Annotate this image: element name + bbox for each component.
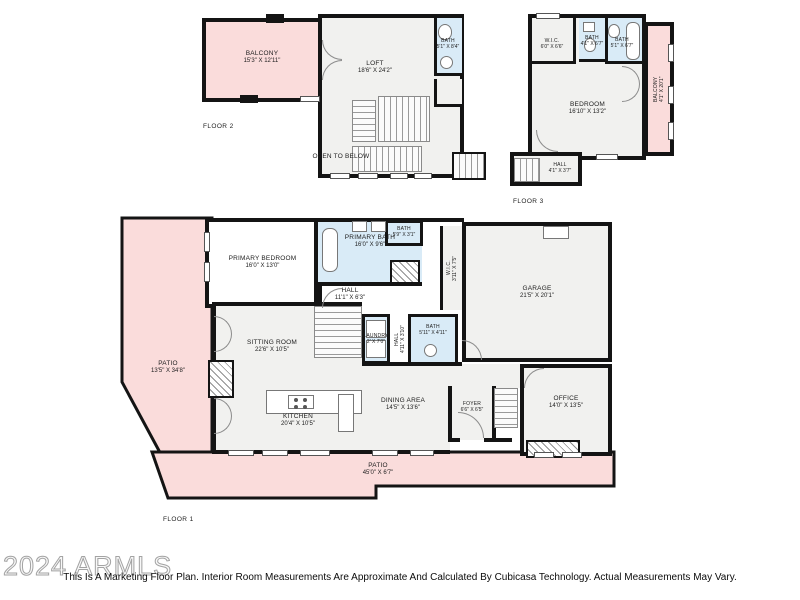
foyer-stairs [494, 388, 518, 428]
window [534, 452, 554, 458]
room-dims: 4'11" X 3'10" [400, 325, 406, 353]
room-dims: 6'0" X 6'6" [541, 44, 564, 50]
room-dims: 5'9" X 3'1" [393, 232, 416, 238]
window [204, 262, 210, 282]
fireplace [208, 360, 234, 398]
room-name: HALL [341, 287, 358, 295]
room-dims: 4'1" X 3'7" [549, 168, 572, 174]
window [300, 96, 320, 102]
balcony-post [240, 95, 258, 103]
room-dims: 13'5" X 34'8" [151, 368, 185, 376]
window [372, 450, 398, 456]
room-name: KITCHEN [283, 413, 313, 421]
room-label-hall-lower: HALL 4'11" X 3'10" [392, 316, 408, 362]
room-label-bath-mid: BATH 5'11" X 4'11" [410, 322, 456, 338]
toilet [424, 344, 437, 357]
floor3-tag: FLOOR 3 [513, 198, 544, 205]
window [668, 122, 674, 140]
room-label-patio-bottom: PATIO 45'0" X 6'7" [330, 460, 426, 480]
room-name: PATIO [368, 462, 388, 470]
room-name: OFFICE [553, 395, 578, 403]
room-label-floor2-bath: BATH 5'1" X 8'4" [427, 36, 469, 52]
room-label-hall-upper: HALL 11'1" X 6'3" [318, 286, 382, 304]
room-name: OPEN TO BELOW [313, 153, 370, 161]
disclaimer-text: This Is A Marketing Floor Plan. Interior… [0, 572, 800, 583]
room-label-bath-small: BATH 5'9" X 3'1" [386, 222, 422, 242]
room-label-floor3-bath-b: BATH 5'1" X 6'7" [596, 36, 648, 50]
room-name: BALCONY [246, 50, 278, 58]
wall [362, 362, 462, 366]
window [596, 154, 618, 160]
room-label-laundry: LAUNDRY 2' X 7'0" [360, 330, 392, 348]
room-dims: 14'5" X 13'6" [386, 405, 420, 413]
sink [440, 56, 453, 69]
room-dims: 15'3" X 12'11" [244, 58, 281, 66]
room-dims: 14'0" X 13'5" [549, 403, 583, 411]
room-dims: 20'4" X 10'5" [281, 421, 315, 429]
sink [352, 221, 367, 232]
room-label-floor3-bedroom: BEDROOM 16'10" X 13'2" [545, 98, 630, 120]
window [536, 13, 560, 19]
room-dims: 21'5" X 20'1" [520, 293, 554, 301]
room-label-dining: DINING AREA 14'5" X 13'6" [358, 394, 448, 416]
floor2-closet [434, 79, 462, 107]
room-dims: 5'1" X 6'7" [611, 43, 634, 49]
floor2-tag: FLOOR 2 [203, 123, 234, 130]
room-label-primary-bedroom: PRIMARY BEDROOM 16'0" X 13'0" [215, 252, 310, 274]
window [228, 450, 254, 456]
window [358, 173, 378, 179]
room-label-patio-left: PATIO 13'5" X 34'8" [128, 358, 208, 378]
room-label-floor3-hall: HALL 4'1" X 3'7" [540, 158, 580, 178]
cooktop-burners [294, 398, 298, 402]
room-dims: 45'0" X 6'7" [363, 470, 394, 478]
room-dims: 5'11" X 4'11" [419, 330, 447, 336]
room-dims: 5'1" X 8'4" [437, 44, 460, 50]
sink [583, 22, 595, 32]
room-dims: 6'6" X 6'5" [461, 407, 484, 413]
room-label-sitting-room: SITTING ROOM 22'6" X 10'5" [222, 336, 322, 358]
window [262, 450, 288, 456]
room-label-garage: GARAGE 21'5" X 20'1" [492, 282, 582, 304]
window [300, 450, 330, 456]
wall [484, 438, 512, 442]
floor-plan-canvas: BALCONY 15'3" X 12'11" LOFT 18'6" X 24'2… [0, 0, 800, 600]
room-dims: 11'1" X 6'3" [335, 295, 365, 303]
room-dims: 18'6" X 24'2" [358, 68, 392, 76]
sink [371, 221, 386, 232]
room-dims: 16'0" X 9'6" [355, 242, 386, 250]
room-label-office: OFFICE 14'0" X 13'5" [522, 392, 610, 414]
room-label-wic: W.I.C. 3'11" X 7'5" [444, 238, 460, 298]
window [390, 173, 408, 179]
window [330, 173, 350, 179]
room-label-floor3-balcony: BALCONY 4'1" X 20'1" [647, 56, 671, 122]
floor3-stairs [514, 158, 540, 182]
cooktop [288, 395, 314, 409]
room-name: BEDROOM [570, 101, 605, 109]
room-dims: 2' X 7'0" [367, 339, 385, 345]
room-dims: 3'11" X 7'5" [452, 255, 458, 280]
room-label-kitchen: KITCHEN 20'4" X 10'5" [252, 410, 344, 432]
room-dims: 16'0" X 13'0" [246, 263, 280, 271]
room-dims: 4'1" X 20'1" [659, 76, 665, 101]
room-label-foyer: FOYER 6'6" X 6'5" [450, 398, 494, 416]
loft-stairs [378, 96, 430, 142]
room-name: SITTING ROOM [247, 339, 297, 347]
floor1-tag: FLOOR 1 [163, 516, 194, 523]
balcony-post [266, 14, 284, 23]
room-name: DINING AREA [381, 397, 425, 405]
room-name: GARAGE [522, 285, 551, 293]
room-name: PRIMARY BEDROOM [229, 255, 297, 263]
loft-stairs [352, 100, 376, 142]
window [414, 173, 432, 179]
window [562, 452, 582, 458]
wall [448, 438, 460, 442]
patio-left-shape [122, 218, 212, 460]
water-heater [543, 226, 569, 239]
room-label-floor2-balcony: BALCONY 15'3" X 12'11" [212, 46, 312, 70]
shower [390, 260, 420, 284]
room-name: LOFT [366, 60, 383, 68]
window [204, 232, 210, 252]
wall [418, 218, 464, 222]
room-label-floor2-loft: LOFT 18'6" X 24'2" [330, 56, 420, 80]
room-dims: 22'6" X 10'5" [255, 347, 289, 355]
exterior-stairs [452, 152, 486, 180]
room-dims: 16'10" X 13'2" [569, 109, 606, 117]
room-name: PATIO [158, 360, 178, 368]
window [410, 450, 434, 456]
floor1-foyer-area [450, 364, 520, 388]
open-to-below-label: OPEN TO BELOW [299, 152, 383, 162]
